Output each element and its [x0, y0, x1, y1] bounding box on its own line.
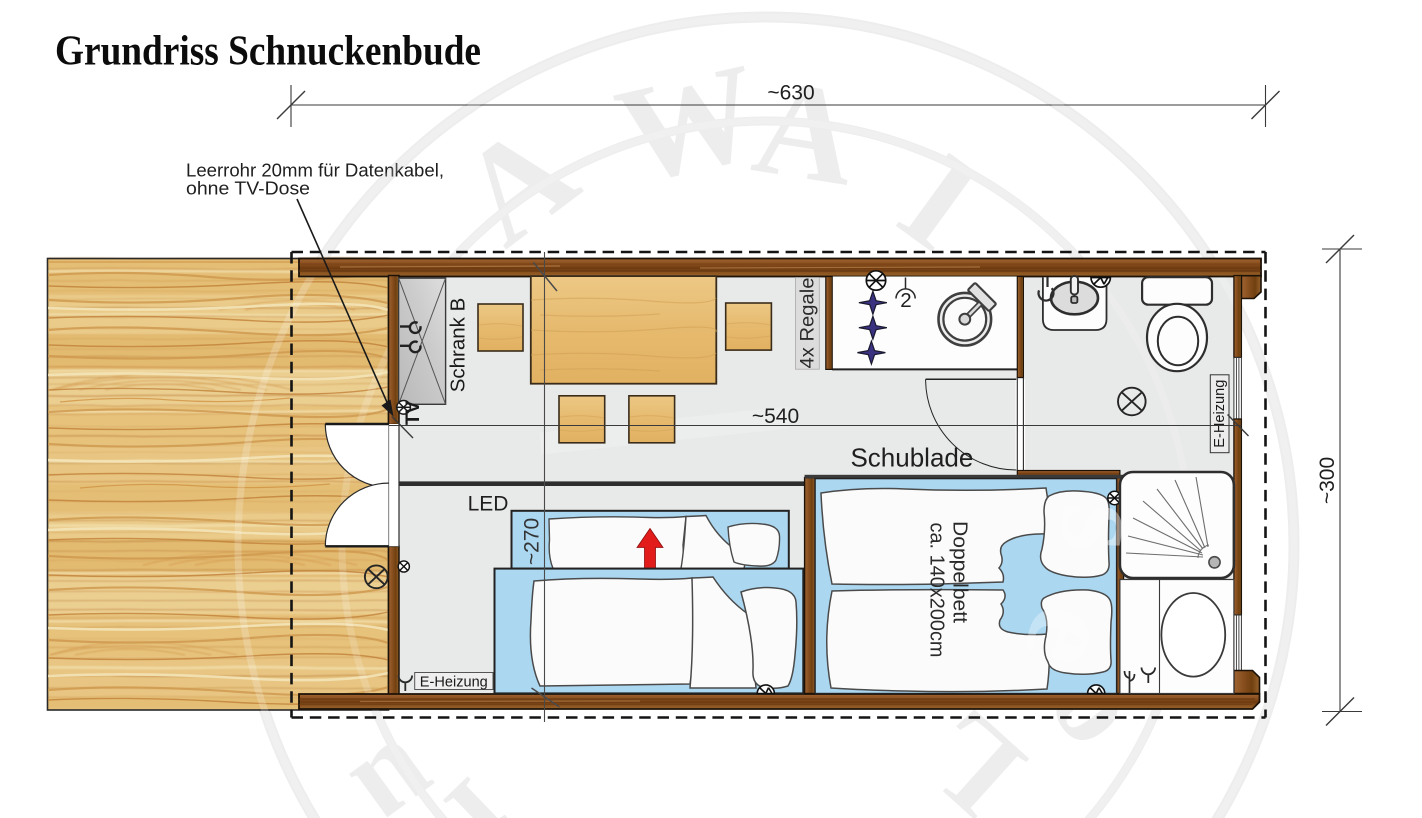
svg-text:~270: ~270 — [521, 518, 544, 565]
svg-text:~540: ~540 — [752, 405, 799, 428]
svg-text:I: I — [874, 124, 1007, 279]
svg-text:Grundriss Schnuckenbude: Grundriss Schnuckenbude — [55, 29, 481, 75]
svg-text:E-Heizung: E-Heizung — [420, 674, 488, 691]
svg-text:4x Regale: 4x Regale — [798, 278, 819, 369]
svg-text:~300: ~300 — [1316, 457, 1339, 504]
svg-text:E-Heizung: E-Heizung — [1211, 380, 1228, 448]
svg-text:LED: LED — [468, 493, 509, 516]
svg-text:~630: ~630 — [767, 82, 814, 105]
svg-text:2: 2 — [900, 289, 911, 312]
svg-text:ohne TV-Dose: ohne TV-Dose — [186, 179, 310, 199]
svg-text:s: s — [1034, 501, 1174, 554]
svg-text:Schrank B: Schrank B — [447, 298, 470, 393]
svg-text:TV: TV — [403, 401, 424, 426]
svg-text:Schublade: Schublade — [850, 443, 973, 473]
